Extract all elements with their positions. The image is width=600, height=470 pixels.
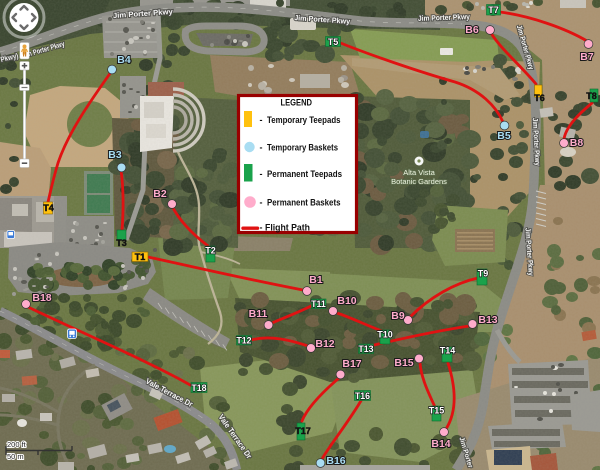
svg-text:Permanent Teepads: Permanent Teepads — [267, 169, 342, 179]
svg-text:-: - — [260, 143, 263, 153]
svg-text:B14: B14 — [431, 438, 450, 450]
svg-text:Temporary Baskets: Temporary Baskets — [267, 143, 338, 153]
svg-text:B12: B12 — [315, 338, 334, 350]
svg-text:LEGEND: LEGEND — [281, 98, 313, 108]
svg-text:B11: B11 — [249, 308, 268, 320]
svg-text:-: - — [260, 223, 263, 233]
svg-text:B3: B3 — [108, 149, 122, 161]
svg-text:T3: T3 — [116, 238, 127, 248]
svg-text:B1: B1 — [309, 274, 323, 286]
svg-text:T13: T13 — [358, 344, 373, 354]
svg-text:-: - — [260, 115, 263, 125]
svg-text:T9: T9 — [478, 269, 489, 279]
svg-text:T18: T18 — [191, 383, 206, 393]
svg-text:Alta Vista: Alta Vista — [403, 168, 435, 177]
svg-text:B8: B8 — [570, 137, 584, 149]
svg-text:T4: T4 — [43, 203, 54, 213]
svg-text:B4: B4 — [117, 54, 131, 66]
svg-text:-: - — [260, 169, 263, 179]
svg-text:50 m: 50 m — [7, 452, 24, 461]
svg-text:T8: T8 — [586, 91, 597, 101]
svg-text:B5: B5 — [497, 130, 511, 142]
svg-text:T17: T17 — [295, 426, 311, 436]
svg-text:Temporary Teepads: Temporary Teepads — [267, 115, 341, 125]
svg-text:B2: B2 — [153, 188, 167, 200]
svg-text:Botanic Gardens: Botanic Gardens — [391, 177, 447, 186]
svg-text:B17: B17 — [342, 358, 361, 370]
svg-text:B15: B15 — [394, 357, 413, 369]
svg-text:T10: T10 — [377, 330, 393, 340]
svg-text:T6: T6 — [534, 93, 545, 103]
svg-text:Flight Path: Flight Path — [265, 223, 310, 233]
svg-text:B10: B10 — [337, 295, 356, 307]
svg-text:T11: T11 — [311, 299, 326, 309]
svg-text:Jim Porter Pkwy: Jim Porter Pkwy — [418, 12, 471, 23]
svg-text:200 ft: 200 ft — [7, 440, 27, 449]
svg-text:T7: T7 — [488, 5, 499, 15]
svg-text:T5: T5 — [328, 37, 339, 47]
svg-text:T1: T1 — [135, 252, 146, 262]
svg-text:Permanent Baskets: Permanent Baskets — [267, 198, 341, 208]
svg-text:T14: T14 — [440, 346, 456, 356]
svg-text:-: - — [260, 198, 263, 208]
svg-text:B6: B6 — [465, 24, 479, 36]
svg-text:T2: T2 — [205, 246, 216, 256]
svg-text:B13: B13 — [478, 314, 497, 326]
svg-text:B7: B7 — [580, 51, 594, 63]
svg-text:B18: B18 — [32, 292, 51, 304]
svg-text:B9: B9 — [391, 310, 405, 322]
svg-text:B16: B16 — [326, 455, 345, 467]
svg-text:T16: T16 — [355, 391, 370, 401]
svg-text:T12: T12 — [236, 335, 251, 345]
svg-text:T15: T15 — [429, 406, 445, 416]
